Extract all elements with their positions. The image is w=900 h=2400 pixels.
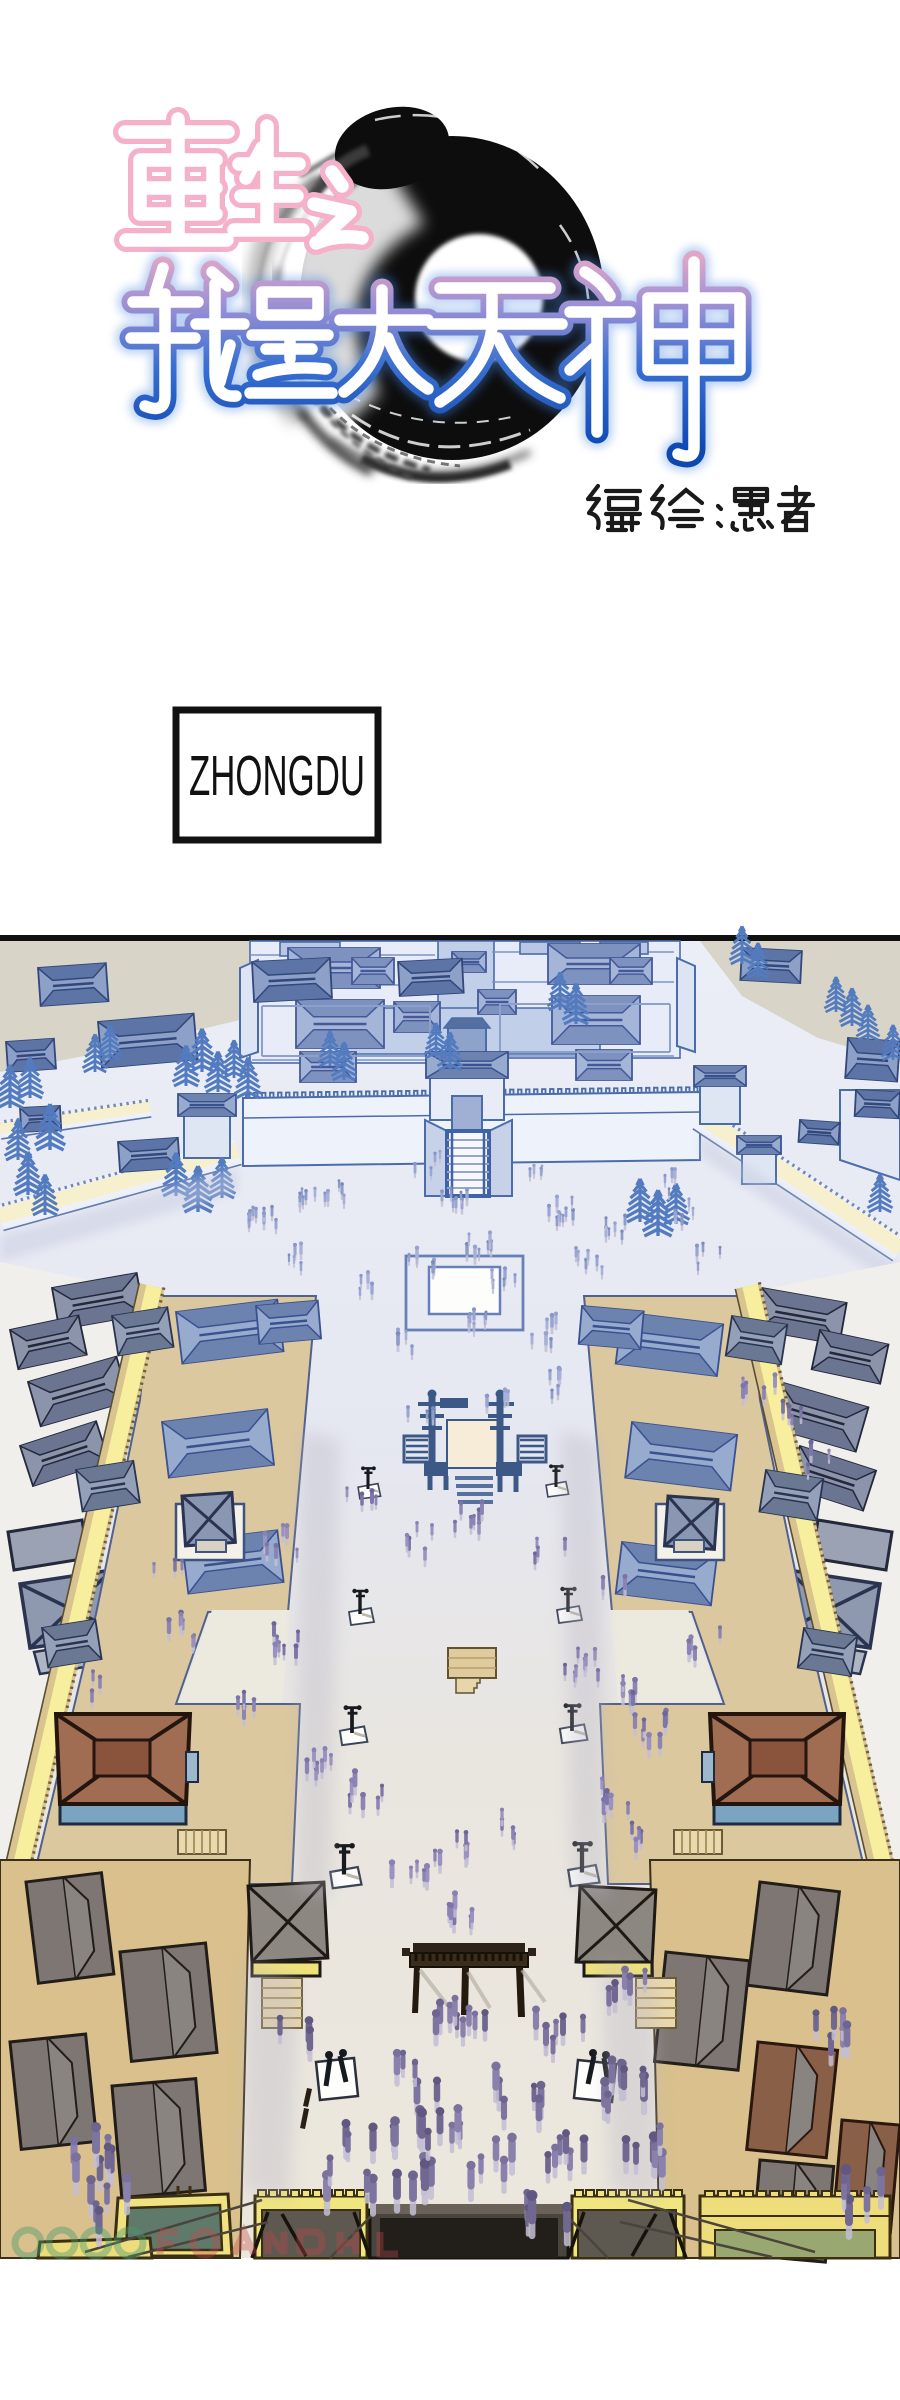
svg-text:ZHONGDU: ZHONGDU [189, 744, 365, 808]
